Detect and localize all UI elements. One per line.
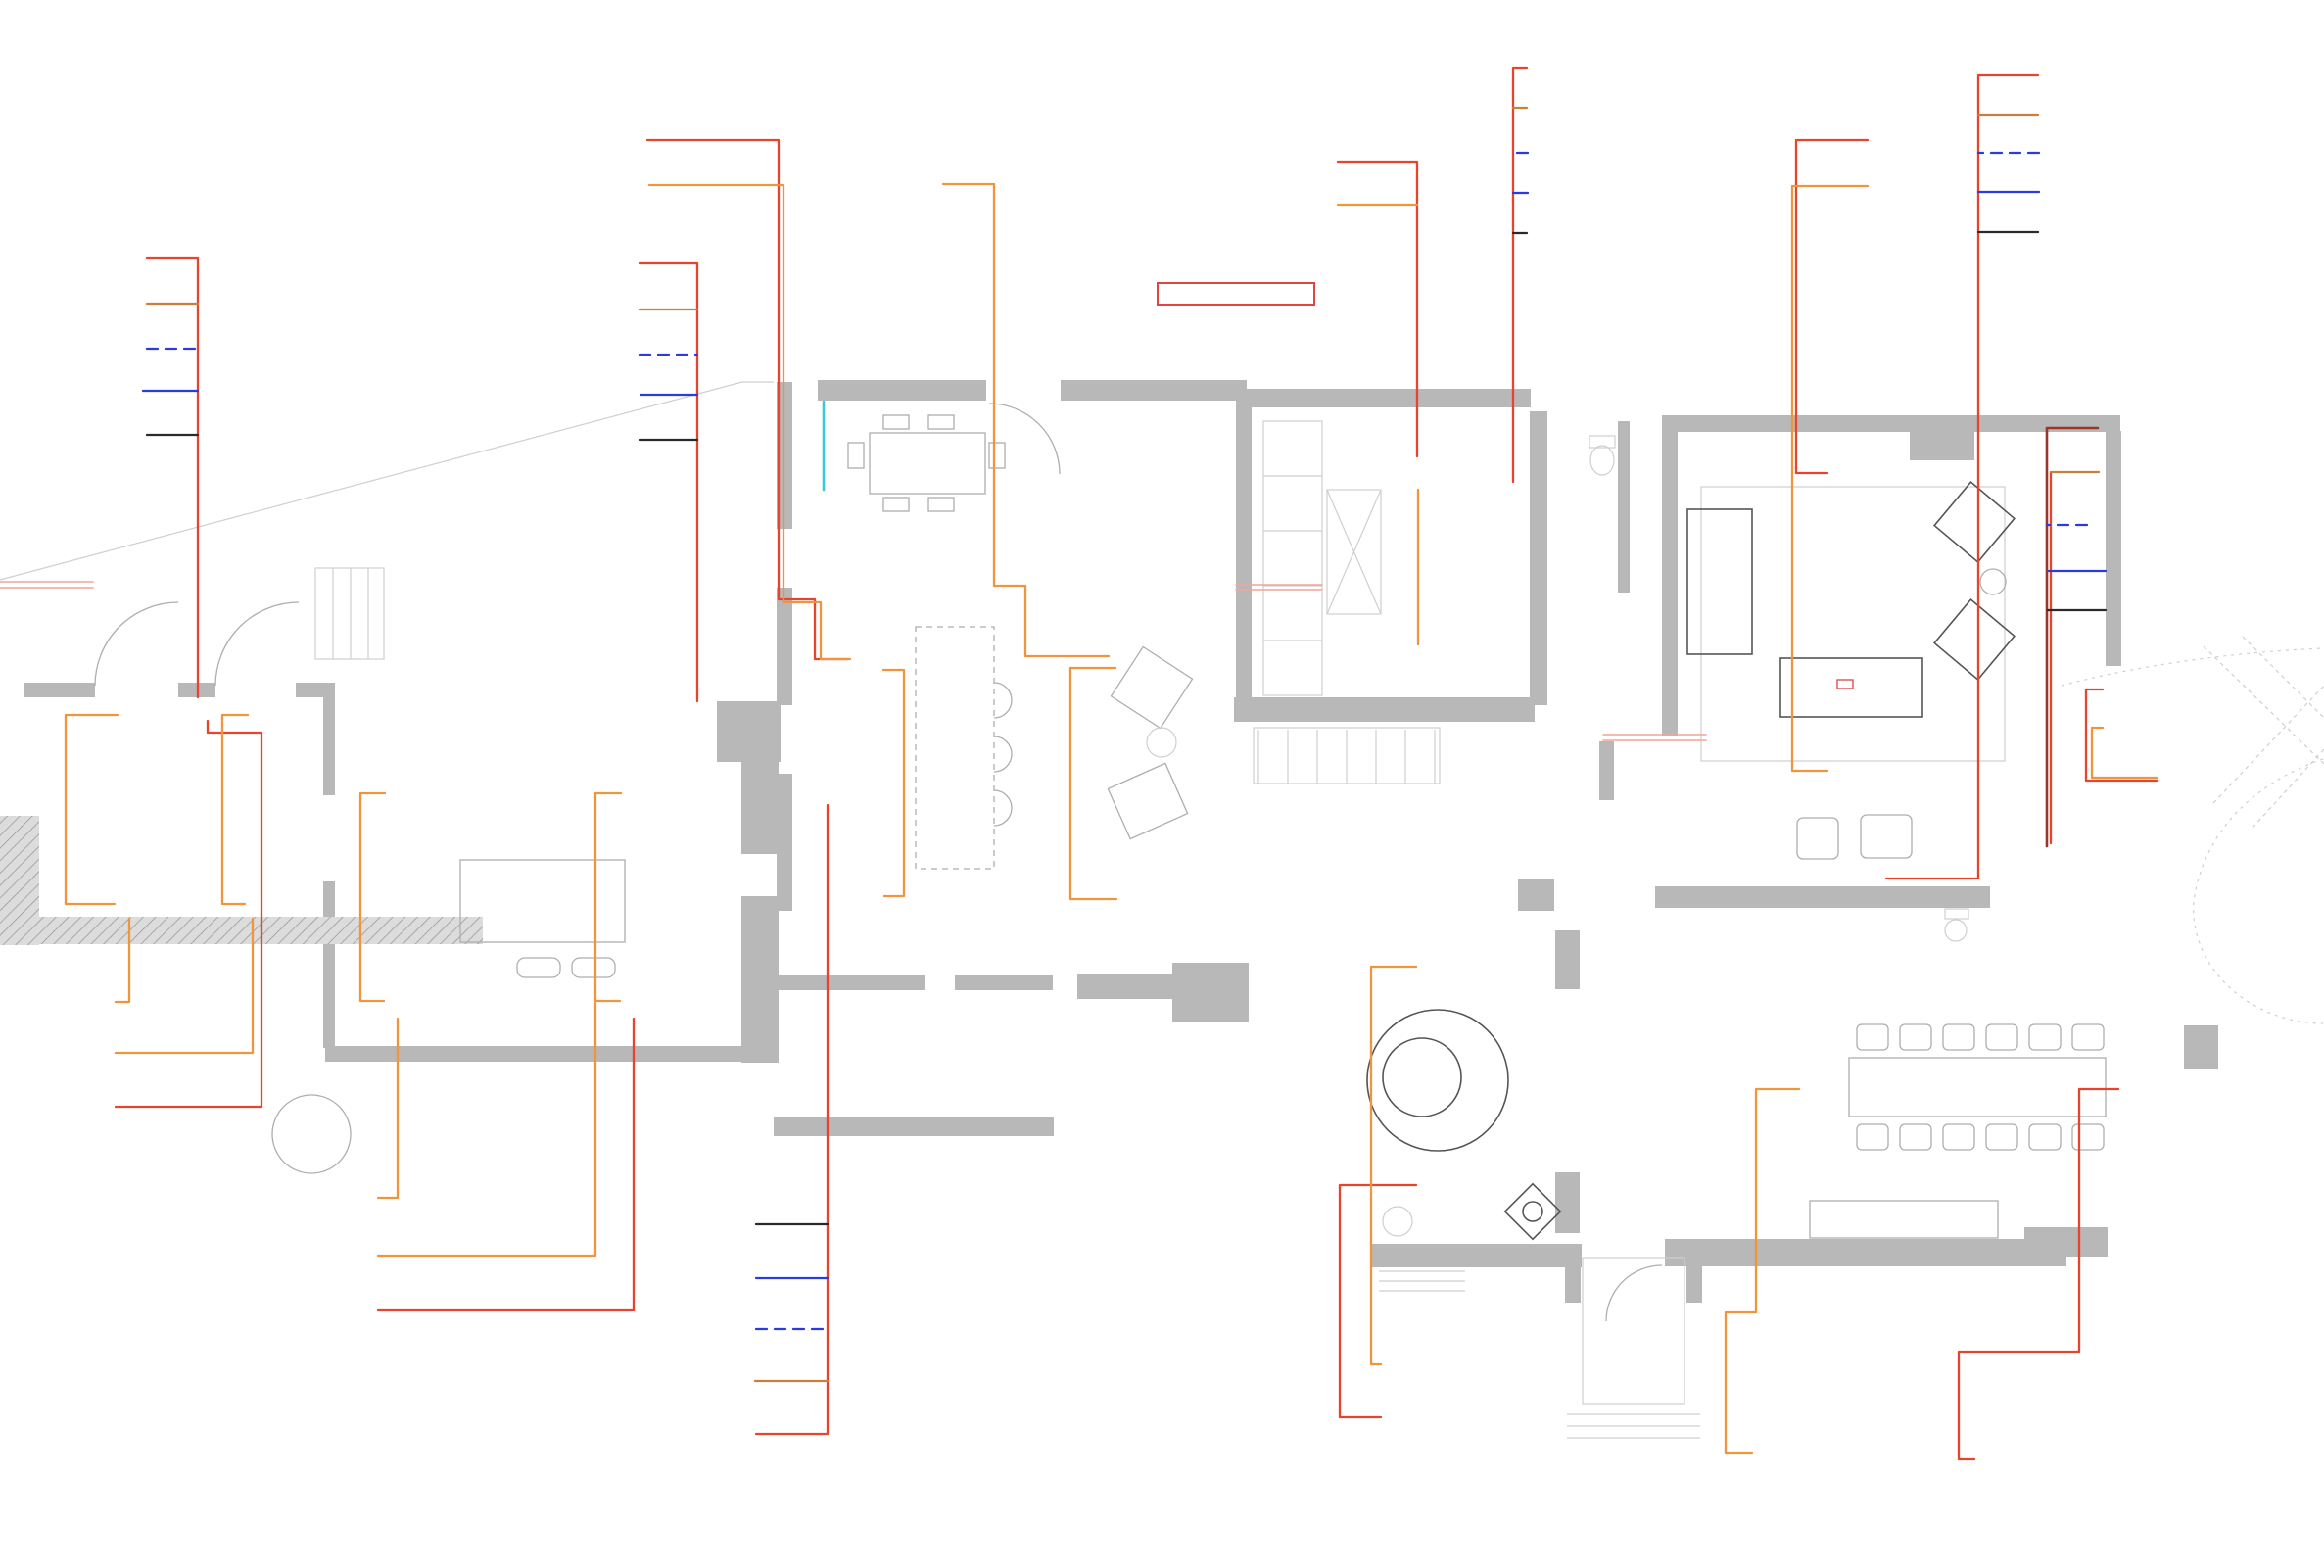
label-layer [0,0,2324,1568]
floorplan-canvas [0,0,2324,1568]
av-headend-note [1157,282,1315,306]
